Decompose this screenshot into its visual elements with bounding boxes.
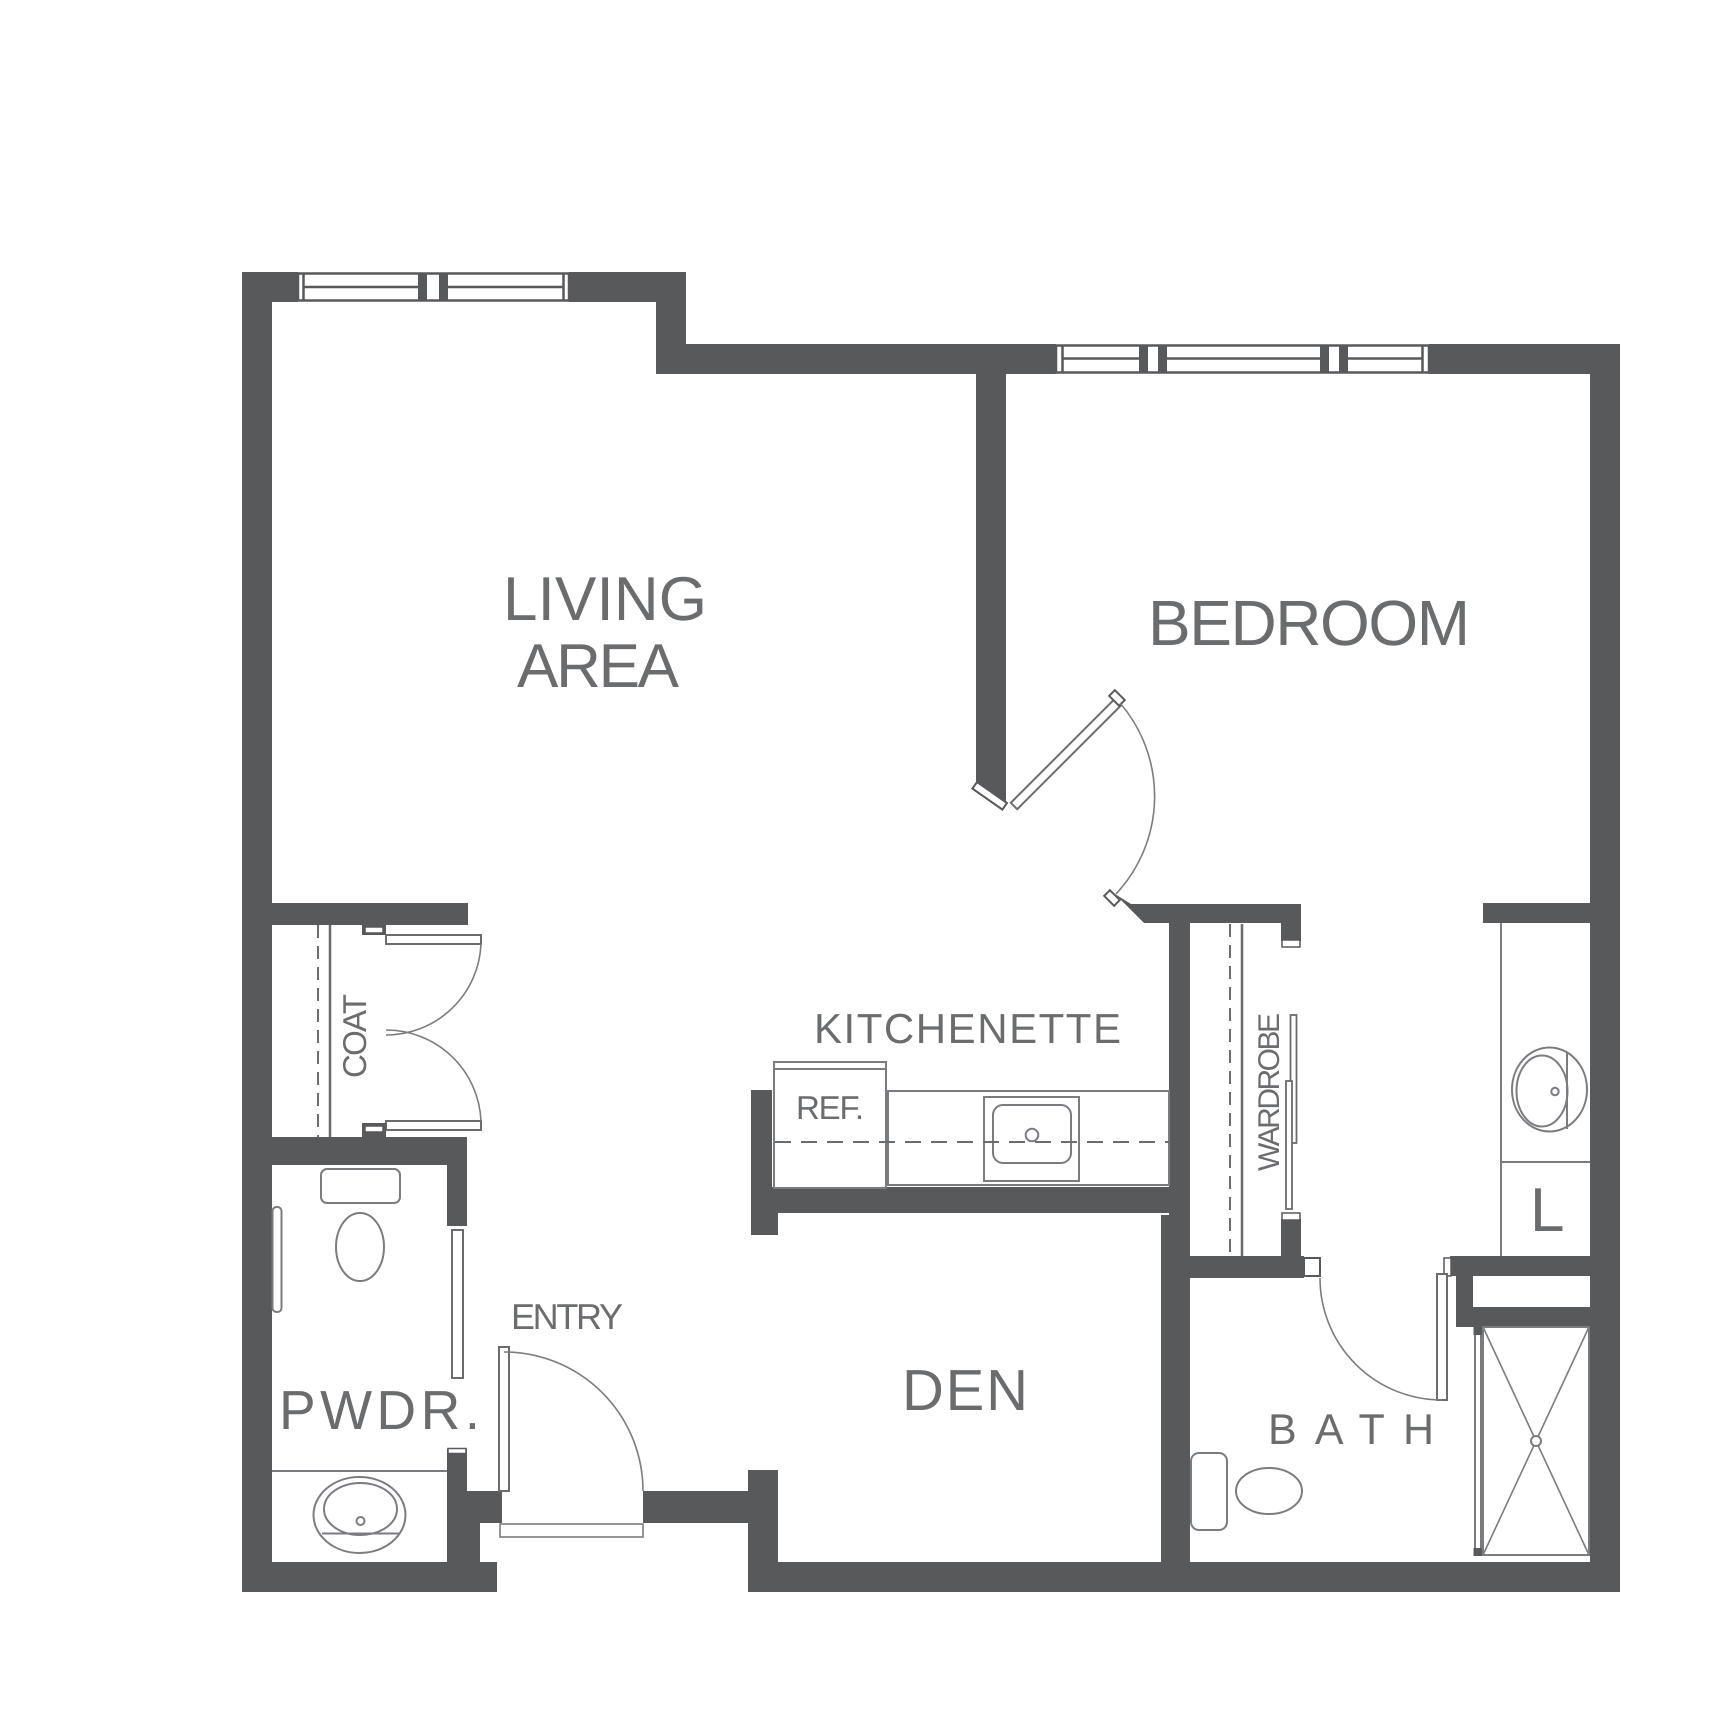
svg-text:L: L — [1530, 1176, 1564, 1245]
svg-text:COAT: COAT — [336, 992, 373, 1078]
svg-text:WARDROBE: WARDROBE — [1253, 1011, 1286, 1171]
svg-text:BEDROOM: BEDROOM — [1148, 587, 1474, 659]
svg-text:AREA: AREA — [517, 632, 683, 701]
svg-text:REF.: REF. — [796, 1089, 864, 1126]
svg-text:LIVING: LIVING — [503, 565, 711, 634]
svg-text:ENTRY: ENTRY — [511, 1296, 623, 1337]
svg-text:KITCHENETTE: KITCHENETTE — [814, 1005, 1121, 1052]
svg-text:DEN: DEN — [902, 1358, 1034, 1423]
svg-text:PWDR.: PWDR. — [279, 1379, 480, 1441]
